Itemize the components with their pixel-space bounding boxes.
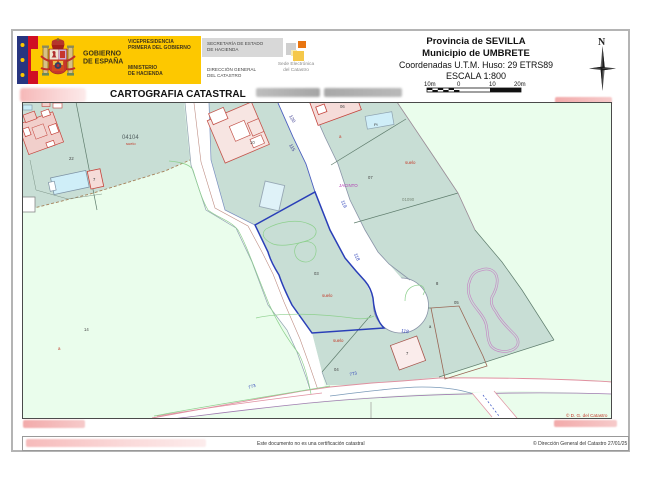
svg-text:10: 10 (250, 140, 255, 145)
svg-text:20m: 20m (514, 82, 526, 88)
svg-text:0: 0 (457, 82, 461, 88)
svg-text:03: 03 (314, 271, 319, 276)
svg-text:01090: 01090 (402, 197, 415, 202)
svg-text:10: 10 (489, 82, 496, 88)
svg-text:JACINTO: JACINTO (339, 183, 358, 188)
svg-text:14: 14 (84, 327, 89, 332)
svg-text:suelo: suelo (405, 160, 416, 165)
svg-text:suelo: suelo (322, 293, 333, 298)
svg-text:06: 06 (340, 104, 345, 109)
svg-text:© D. G. del Catastro: © D. G. del Catastro (566, 412, 608, 418)
svg-text:DE ESPAÑA: DE ESPAÑA (83, 57, 123, 66)
svg-text:suelo: suelo (126, 141, 136, 146)
svg-text:suelo: suelo (333, 338, 344, 343)
svg-text:05: 05 (454, 300, 459, 305)
svg-text:22: 22 (69, 156, 74, 161)
svg-text:10m: 10m (424, 82, 436, 88)
svg-text:GOBIERNO: GOBIERNO (83, 51, 122, 58)
svg-text:Pi: Pi (374, 122, 378, 127)
svg-text:07: 07 (368, 175, 373, 180)
svg-text:04: 04 (334, 367, 339, 372)
svg-text:N: N (598, 37, 606, 48)
